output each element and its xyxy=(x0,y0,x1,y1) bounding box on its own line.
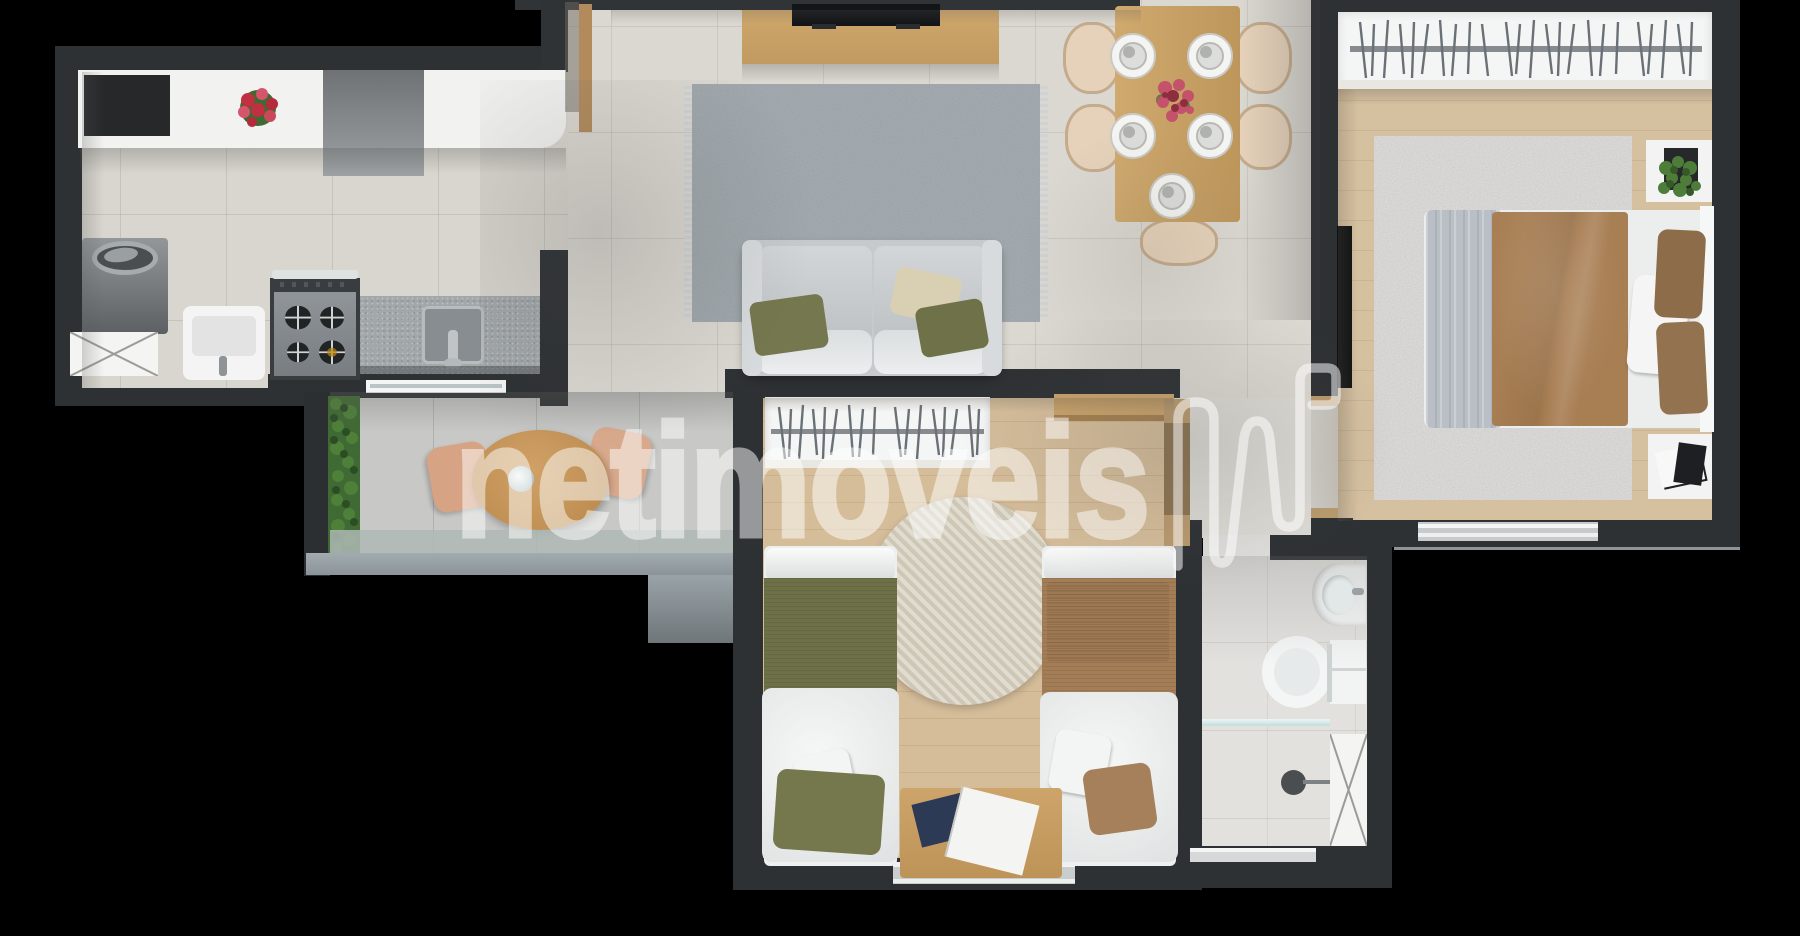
svg-text:netimoveis: netimoveis xyxy=(455,393,1148,571)
